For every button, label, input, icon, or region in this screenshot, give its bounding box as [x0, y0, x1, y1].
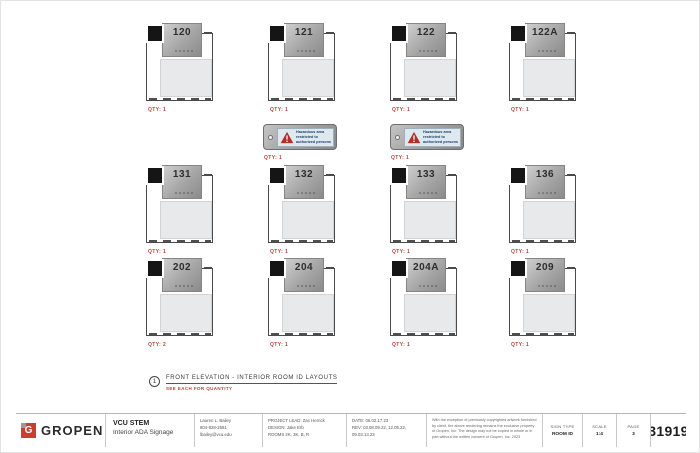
room-sign-131: 131 QTY: 1: [140, 165, 220, 261]
scale-cell: SCALE 1:4: [582, 414, 616, 447]
warning-triangle-icon: [407, 131, 421, 144]
designer: DESIGN: Jake Erb: [268, 425, 341, 432]
sign-type-label: SIGN TYPE: [551, 424, 575, 429]
logo-cell: G GROPEN: [16, 414, 105, 447]
room-number: 204: [285, 262, 323, 273]
room-number: 122: [407, 27, 445, 38]
hazard-plaque: Hazardous area restricted to authorized …: [263, 124, 337, 150]
mount-tabs-bottom: [271, 333, 333, 335]
mount-tabs-bottom: [512, 333, 574, 335]
insert-panel: [160, 294, 212, 332]
qty-label: QTY: 1: [270, 249, 288, 255]
accent-square: [148, 168, 162, 183]
mount-tabs-bottom: [512, 240, 574, 242]
accent-square: [148, 26, 162, 41]
number-plate: 204: [284, 258, 324, 292]
number-plate: 122: [406, 23, 446, 57]
elevation-note: 1 FRONT ELEVATION - INTERIOR ROOM ID LAY…: [149, 375, 337, 391]
braille-dots: [175, 192, 177, 194]
accent-square: [392, 261, 406, 276]
number-plate: 121: [284, 23, 324, 57]
insert-panel: [282, 294, 334, 332]
rooms-list: ROOMS 2K, 3K, B, R: [268, 432, 341, 439]
page-cell: PAGE 3: [616, 414, 650, 447]
elevation-subtitle: SEE EACH FOR QUANTITY: [166, 386, 337, 391]
mount-tab: [326, 267, 334, 269]
qty-label: QTY: 1: [511, 107, 529, 113]
braille-dots: [175, 285, 177, 287]
warning-triangle-icon: [280, 131, 294, 144]
braille-dots: [538, 285, 540, 287]
dates-cell: DATE: 06.02.17.23 REV: 03.08.09.22, 12.0…: [346, 414, 426, 447]
room-number: 121: [285, 27, 323, 38]
hazard-label: Hazardous area restricted to authorized …: [277, 128, 334, 147]
revisions: REV: 03.08.09.22, 12.05.22,: [352, 425, 421, 432]
mount-tab: [567, 267, 575, 269]
gropen-logo-icon: G: [21, 423, 36, 438]
hazard-plaque: Hazardous area restricted to authorized …: [390, 124, 464, 150]
room-sign-122A: 122A QTY: 1: [503, 23, 583, 119]
mount-tab: [567, 174, 575, 176]
room-number: 209: [526, 262, 564, 273]
contact-cell: Lauren L. Bailey 804-828-2581 lbailey@vc…: [194, 414, 262, 447]
room-sign-136: 136 QTY: 1: [503, 165, 583, 261]
sign-type-value: ROOM ID: [552, 432, 573, 437]
accent-square: [270, 261, 284, 276]
room-sign-122: 122 QTY: 1: [384, 23, 464, 119]
room-number: 202: [163, 262, 201, 273]
room-sign-204A: 204A QTY: 1: [384, 258, 464, 354]
mount-tab: [204, 32, 212, 34]
room-number: 133: [407, 169, 445, 180]
insert-panel: [523, 59, 575, 97]
mount-tabs-bottom: [393, 333, 455, 335]
qty-label: QTY: 1: [392, 107, 410, 113]
number-plate: 120: [162, 23, 202, 57]
mount-tabs-bottom: [393, 240, 455, 242]
elevation-title: FRONT ELEVATION - INTERIOR ROOM ID LAYOU…: [166, 375, 337, 384]
accent-square: [148, 261, 162, 276]
detail-number-bubble: 1: [149, 376, 160, 387]
braille-dots: [175, 50, 177, 52]
qty-label: QTY: 1: [392, 249, 410, 255]
hazard-text: Hazardous area restricted to authorized …: [294, 130, 331, 145]
hazard-sign: Hazardous area restricted to authorized …: [263, 124, 343, 168]
logo-wordmark: GROPEN: [41, 423, 103, 438]
accent-square: [511, 168, 525, 183]
braille-dots: [419, 50, 421, 52]
braille-dots: [297, 285, 299, 287]
number-plate: 209: [525, 258, 565, 292]
hazard-sign: Hazardous area restricted to authorized …: [390, 124, 470, 168]
project-subtitle: Interior ADA Signage: [113, 429, 189, 436]
accent-square: [511, 26, 525, 41]
mount-tabs-bottom: [149, 240, 211, 242]
room-sign-133: 133 QTY: 1: [384, 165, 464, 261]
braille-dots: [419, 192, 421, 194]
job-number: 31919: [650, 423, 686, 439]
mount-tabs-bottom: [271, 240, 333, 242]
braille-dots: [297, 50, 299, 52]
qty-label: QTY: 1: [270, 107, 288, 113]
qty-label: QTY: 1: [511, 342, 529, 348]
room-sign-202: 202 QTY: 2: [140, 258, 220, 354]
braille-dots: [538, 50, 540, 52]
mount-tabs-bottom: [393, 98, 455, 100]
project-lead: PROJECT LEAD: Zac Herrick: [268, 418, 341, 425]
mount-tab: [326, 174, 334, 176]
room-number: 131: [163, 169, 201, 180]
disclaimer-cell: With the exception of previously copyrig…: [426, 414, 542, 447]
number-plate: 136: [525, 165, 565, 199]
mounting-hole: [268, 135, 273, 140]
project-title: VCU STEM: [113, 420, 189, 427]
room-sign-132: 132 QTY: 1: [262, 165, 342, 261]
title-block: G GROPEN VCU STEM Interior ADA Signage L…: [16, 413, 686, 447]
accent-square: [392, 26, 406, 41]
mount-tabs-bottom: [149, 98, 211, 100]
accent-square: [511, 261, 525, 276]
qty-label: QTY: 1: [264, 155, 282, 161]
contact-email: lbailey@vcu.edu: [200, 432, 257, 439]
number-plate: 122A: [525, 23, 565, 57]
qty-label: QTY: 1: [270, 342, 288, 348]
room-number: 120: [163, 27, 201, 38]
qty-label: QTY: 1: [148, 249, 166, 255]
insert-panel: [523, 294, 575, 332]
contact-phone: 804-828-2581: [200, 425, 257, 432]
signage-spec-sheet: 120 QTY: 1 121 QTY: 1 122 QTY: 1: [0, 0, 700, 453]
sign-type-cell: SIGN TYPE ROOM ID: [542, 414, 582, 447]
qty-label: QTY: 1: [391, 155, 409, 161]
team-cell: PROJECT LEAD: Zac Herrick DESIGN: Jake E…: [262, 414, 346, 447]
mount-tabs-bottom: [271, 98, 333, 100]
braille-dots: [419, 285, 421, 287]
job-number-cell: 31919: [650, 414, 686, 447]
mount-tab: [448, 32, 456, 34]
number-plate: 133: [406, 165, 446, 199]
room-number: 122A: [526, 27, 564, 38]
room-sign-120: 120 QTY: 1: [140, 23, 220, 119]
insert-panel: [404, 294, 456, 332]
room-number: 136: [526, 169, 564, 180]
scale-value: 1:4: [596, 432, 603, 437]
number-plate: 131: [162, 165, 202, 199]
mount-tab: [326, 32, 334, 34]
braille-dots: [297, 192, 299, 194]
mount-tabs-bottom: [149, 333, 211, 335]
mount-tabs-bottom: [512, 98, 574, 100]
number-plate: 202: [162, 258, 202, 292]
number-plate: 204A: [406, 258, 446, 292]
page-value: 3: [632, 432, 635, 437]
qty-label: QTY: 1: [148, 107, 166, 113]
insert-panel: [404, 59, 456, 97]
insert-panel: [282, 59, 334, 97]
braille-dots: [538, 192, 540, 194]
insert-panel: [160, 201, 212, 239]
mount-tab: [448, 174, 456, 176]
scale-label: SCALE: [592, 424, 607, 429]
project-title-cell: VCU STEM Interior ADA Signage: [105, 414, 194, 447]
insert-panel: [282, 201, 334, 239]
qty-label: QTY: 2: [148, 342, 166, 348]
room-sign-204: 204 QTY: 1: [262, 258, 342, 354]
insert-panel: [160, 59, 212, 97]
room-number: 204A: [407, 262, 445, 273]
hazard-label: Hazardous area restricted to authorized …: [404, 128, 461, 147]
revisions-continued: 09.03.13.23: [352, 432, 421, 439]
qty-label: QTY: 1: [511, 249, 529, 255]
room-number: 132: [285, 169, 323, 180]
hazard-text: Hazardous area restricted to authorized …: [421, 130, 458, 145]
number-plate: 132: [284, 165, 324, 199]
mounting-hole: [395, 135, 400, 140]
mount-tab: [448, 267, 456, 269]
mount-tab: [204, 267, 212, 269]
accent-square: [270, 168, 284, 183]
qty-label: QTY: 1: [392, 342, 410, 348]
mount-tab: [204, 174, 212, 176]
accent-square: [270, 26, 284, 41]
room-sign-121: 121 QTY: 1: [262, 23, 342, 119]
mount-tab: [567, 32, 575, 34]
insert-panel: [404, 201, 456, 239]
page-label: PAGE: [627, 424, 639, 429]
contact-name: Lauren L. Bailey: [200, 418, 257, 425]
accent-square: [392, 168, 406, 183]
insert-panel: [523, 201, 575, 239]
room-sign-209: 209 QTY: 1: [503, 258, 583, 354]
date: DATE: 06.02.17.23: [352, 418, 421, 425]
